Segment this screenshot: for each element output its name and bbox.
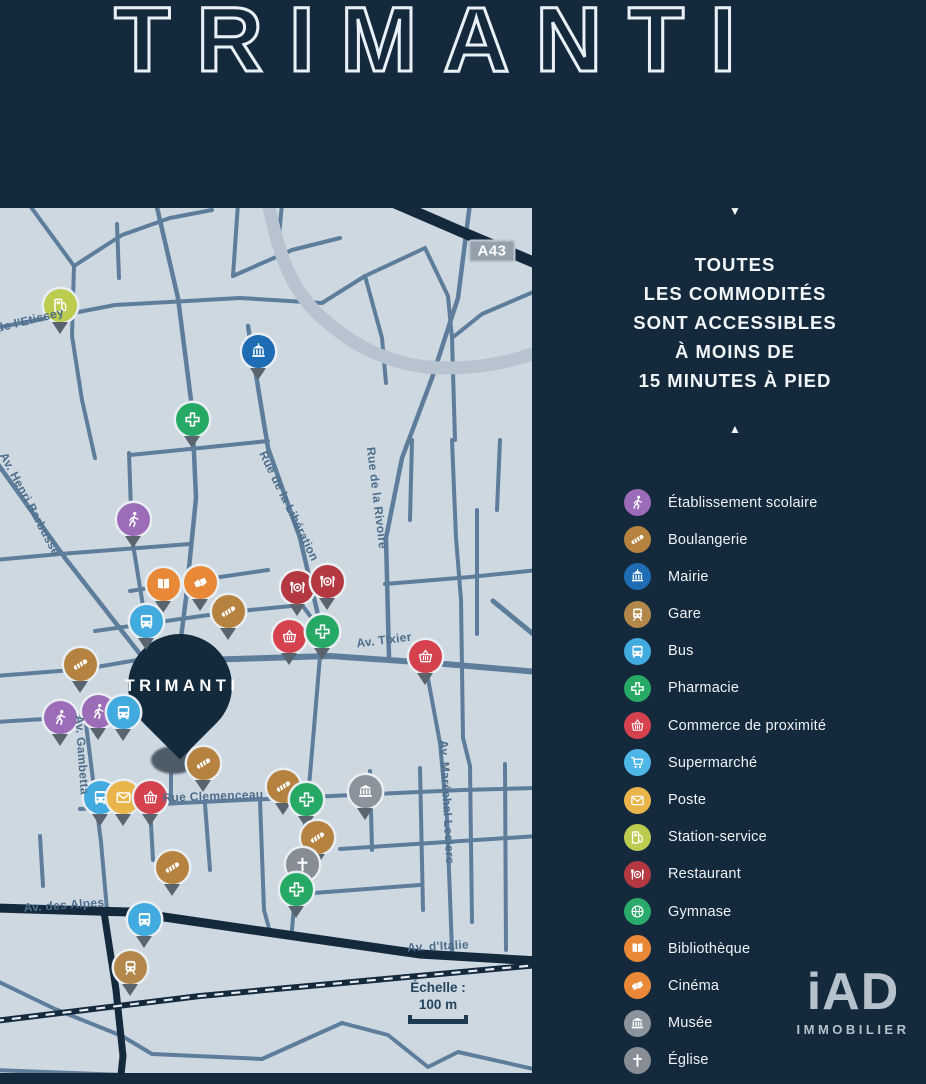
legend-item-gymnase: Gymnase <box>624 898 826 925</box>
pin-tail <box>122 984 138 996</box>
legend-label: Gymnase <box>668 904 731 920</box>
pin-tail <box>115 729 131 741</box>
map-pin-pharmacie <box>176 403 209 436</box>
iad-logo-subtitle: IMMOBILIER <box>793 1022 913 1037</box>
pin-tail <box>417 673 433 685</box>
gymnase-icon <box>624 898 651 925</box>
boulangerie-icon <box>274 777 293 796</box>
legend-label: Bibliothèque <box>668 941 750 957</box>
legend-item-mairie: Mairie <box>624 563 826 590</box>
map-pin-commerce <box>409 640 442 673</box>
map-pin-restaurant <box>311 565 344 598</box>
pharmacie-icon <box>313 622 332 641</box>
pin-tail <box>115 814 131 826</box>
pin-tail <box>275 803 291 815</box>
legend-label: Église <box>668 1052 709 1068</box>
pin-tail <box>184 436 200 448</box>
pin-tail <box>52 322 68 334</box>
legend-label: Établissement scolaire <box>668 495 817 511</box>
map-pin-ecole <box>117 503 150 536</box>
eglise-icon <box>624 1047 651 1074</box>
map-pin-mairie <box>242 335 275 368</box>
map-pin-boulangerie <box>156 851 189 884</box>
pin-tail <box>192 599 208 611</box>
scale-bar <box>408 1015 468 1024</box>
boulangerie-icon <box>194 754 213 773</box>
legend-item-pharmacie: Pharmacie <box>624 675 826 702</box>
map-pin-pharmacie <box>290 783 323 816</box>
ecole-icon <box>51 708 70 727</box>
gare-icon <box>121 958 140 977</box>
restaurant-icon <box>288 578 307 597</box>
map-pin-bibliotheque <box>147 568 180 601</box>
tagline-line: 15 MINUTES À PIED <box>565 366 905 395</box>
eglise-icon <box>293 855 312 874</box>
map-pin-bus <box>128 903 161 936</box>
musee-icon <box>624 1010 651 1037</box>
pin-tail <box>281 653 297 665</box>
bus-icon <box>137 612 156 631</box>
pin-tail <box>289 604 305 616</box>
pin-tail <box>52 734 68 746</box>
pin-tail <box>250 368 266 380</box>
bibliotheque-icon <box>624 935 651 962</box>
map-pin-boulangerie <box>212 595 245 628</box>
mairie-icon <box>249 342 268 361</box>
legend-label: Bus <box>668 643 694 659</box>
map-pin-pharmacie <box>280 873 313 906</box>
tagline-line: À MOINS DE <box>565 337 905 366</box>
pin-tail <box>92 814 108 826</box>
legend-label: Poste <box>668 792 706 808</box>
bibliotheque-icon <box>154 575 173 594</box>
scale-label: Échelle : <box>402 980 474 995</box>
legend-item-poste: Poste <box>624 787 826 814</box>
gare-icon <box>624 601 651 628</box>
map-pin-commerce <box>134 781 167 814</box>
pharmacie-icon <box>183 410 202 429</box>
pin-tail <box>220 628 236 640</box>
map-pin-gare <box>114 951 147 984</box>
legend-item-eglise: Église <box>624 1047 826 1074</box>
legend-item-station: Station-service <box>624 824 826 851</box>
legend-item-commerce: Commerce de proximité <box>624 712 826 739</box>
pin-tail <box>90 728 106 740</box>
legend-label: Musée <box>668 1015 713 1031</box>
scale-value: 100 m <box>402 997 474 1012</box>
legend-item-boulangerie: Boulangerie <box>624 526 826 553</box>
boulangerie-icon <box>219 602 238 621</box>
major-band-road <box>268 208 532 368</box>
boulangerie-icon <box>624 526 651 553</box>
highway-badge-a43: A43 <box>468 240 515 263</box>
map-pin-boulangerie <box>187 747 220 780</box>
legend-label: Restaurant <box>668 866 741 882</box>
legend-label: Supermarché <box>668 755 757 771</box>
poste-icon <box>624 787 651 814</box>
pharmacie-icon <box>297 790 316 809</box>
map-pin-restaurant <box>281 571 314 604</box>
property-pin-label: TRIMANTI <box>128 634 232 738</box>
legend-label: Station-service <box>668 829 767 845</box>
brand-logo: iAD IMMOBILIER <box>793 966 913 1037</box>
pin-tail <box>314 648 330 660</box>
legend-label: Pharmacie <box>668 680 739 696</box>
legend-item-ecole: Établissement scolaire <box>624 489 826 516</box>
pin-tail <box>138 638 154 650</box>
restaurant-icon <box>318 572 337 591</box>
cinema-icon <box>624 972 651 999</box>
pin-tail <box>164 884 180 896</box>
legend-label: Mairie <box>668 569 709 585</box>
pin-tail <box>319 598 335 610</box>
supermarche-icon <box>624 749 651 776</box>
pin-tail <box>125 536 141 548</box>
tagline-line: LES COMMODITÉS <box>565 279 905 308</box>
ecole-icon <box>124 510 143 529</box>
ecole-icon <box>89 702 108 721</box>
pin-tail <box>357 808 373 820</box>
legend-label: Boulangerie <box>668 532 748 548</box>
arrow-down-icon: ▼ <box>729 204 741 218</box>
legend-item-bus: Bus <box>624 638 826 665</box>
map-pin-cinema <box>184 566 217 599</box>
poste-icon <box>114 788 133 807</box>
map-pin-bus <box>130 605 163 638</box>
legend-item-gare: Gare <box>624 601 826 628</box>
commerce-icon <box>141 788 160 807</box>
legend-item-bibliotheque: Bibliothèque <box>624 935 826 962</box>
boulangerie-icon <box>163 858 182 877</box>
commerce-icon <box>624 712 651 739</box>
legend-item-supermarche: Supermarché <box>624 749 826 776</box>
mairie-icon <box>624 563 651 590</box>
page-title: TRIMANTI <box>114 0 761 93</box>
ecole-icon <box>624 489 651 516</box>
map-pin-commerce <box>273 620 306 653</box>
musee-icon <box>356 782 375 801</box>
pin-tail <box>288 906 304 918</box>
commerce-icon <box>416 647 435 666</box>
cinema-icon <box>191 573 210 592</box>
arrow-up-icon: ▲ <box>729 422 741 436</box>
commerce-icon <box>280 627 299 646</box>
boulangerie-icon <box>308 828 327 847</box>
map-scale: Échelle : 100 m <box>402 980 474 1024</box>
map: A43 TRIMANTI de l'EtisseyAv. Henri Barbu… <box>0 208 532 1073</box>
map-pin-musee <box>349 775 382 808</box>
boulangerie-icon <box>71 655 90 674</box>
iad-logo: iAD <box>793 966 913 1018</box>
bus-icon <box>114 703 133 722</box>
legend-label: Gare <box>668 606 701 622</box>
station-icon <box>624 824 651 851</box>
tagline-line: TOUTES <box>565 250 905 279</box>
legend-label: Commerce de proximité <box>668 718 826 734</box>
restaurant-icon <box>624 861 651 888</box>
pin-tail <box>72 681 88 693</box>
pin-tail <box>136 936 152 948</box>
pharmacie-icon <box>287 880 306 899</box>
legend-item-restaurant: Restaurant <box>624 861 826 888</box>
map-pin-boulangerie <box>64 648 97 681</box>
pharmacie-icon <box>624 675 651 702</box>
map-pin-bus <box>107 696 140 729</box>
tagline-line: SONT ACCESSIBLES <box>565 308 905 337</box>
map-pin-pharmacie <box>306 615 339 648</box>
pin-tail <box>142 814 158 826</box>
bus-icon <box>135 910 154 929</box>
bus-icon <box>624 638 651 665</box>
legend-label: Cinéma <box>668 978 719 994</box>
tagline: TOUTESLES COMMODITÉSSONT ACCESSIBLESÀ MO… <box>565 250 905 395</box>
